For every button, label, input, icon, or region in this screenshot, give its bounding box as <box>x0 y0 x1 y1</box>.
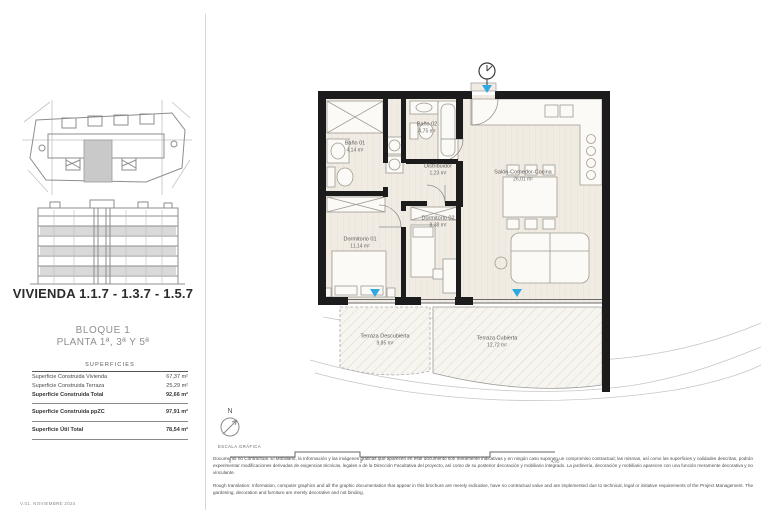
row-value: 97,91 m² <box>166 408 188 417</box>
scale-label: ESCALA GRÁFICA <box>218 444 261 449</box>
table-separator <box>32 421 188 422</box>
plan-sheet: VIVIENDA 1.1.7 - 1.3.7 - 1.5.7 BLOQUE 1 … <box>0 0 768 529</box>
room-label-salon: Salón-Comedor-Cocina 26,01 m² <box>494 169 551 182</box>
room-label-distribuidor: Distribuidor 1,23 m² <box>424 163 452 176</box>
table-separator <box>32 403 188 404</box>
dining-table <box>503 177 557 217</box>
version-label: V.01. NOVIEMBRE 2024 <box>20 501 76 506</box>
block-label: BLOQUE 1 <box>10 325 196 336</box>
room-label-dormitorio-02: Dormitorio 02 8,38 m² <box>421 215 454 228</box>
room-label-dormitorio-01: Dormitorio 01 11,14 m² <box>343 236 376 249</box>
highlighted-unit <box>84 140 112 182</box>
disclaimer-spanish: Documento no Contractual. El Mobiliario,… <box>213 456 753 477</box>
table-row: Superficie Construida ppZC 97,91 m² <box>32 408 188 417</box>
building-elevation-thumbnail <box>30 196 185 286</box>
desk <box>443 259 457 293</box>
toilet <box>327 167 335 187</box>
unit-title: VIVIENDA 1.1.7 - 1.3.7 - 1.5.7 <box>10 286 196 302</box>
row-value: 67,37 m² <box>166 373 188 382</box>
disclaimer-block: Documento no Contractual. El Mobiliario,… <box>213 456 753 502</box>
chair <box>433 269 443 279</box>
washer <box>386 137 403 154</box>
row-label: Superficie Construida ppZC <box>32 408 105 417</box>
floor-label: PLANTA 1ª, 3ª Y 5ª <box>10 337 196 348</box>
row-value: 92,66 m² <box>166 391 188 400</box>
room-label-bano-01: Baño 01 4,14 m² <box>345 140 366 153</box>
surfaces-table: Superficie Construida Vivienda 67,37 m² … <box>32 373 188 444</box>
row-value: 78,54 m² <box>166 426 188 435</box>
row-label: Superficie Útil Total <box>32 426 83 435</box>
room-label-bano-02: Baño 02 4,75 m² <box>417 121 438 134</box>
terrace-covered-area <box>433 307 602 388</box>
table-row: Superficie Útil Total 78,54 m² <box>32 426 188 435</box>
disclaimer-english: Rough translation: Information, computer… <box>213 483 753 497</box>
dryer <box>386 156 403 173</box>
site-plan-thumbnail <box>22 100 192 195</box>
row-label: Superficie Construida Terraza <box>32 382 104 391</box>
surfaces-table-header: SUPERFICIES <box>32 362 188 372</box>
row-label: Superficie Construida Total <box>32 391 103 400</box>
floor-plan-drawing <box>205 55 765 405</box>
room-label-terraza-descubierta: Terraza Descubierta 9,85 m² <box>360 333 409 346</box>
row-value: 25,29 m² <box>166 382 188 391</box>
table-row: Superficie Construida Terraza 25,29 m² <box>32 382 188 391</box>
nightstand <box>387 288 395 297</box>
table-row: Superficie Construida Total 92,66 m² <box>32 391 188 400</box>
table-separator <box>32 439 188 440</box>
table-row: Superficie Construida Vivienda 67,37 m² <box>32 373 188 382</box>
north-and-scale: N ESCALA GRÁFICA 0 2 4,95 <box>210 403 570 463</box>
north-arrow-icon <box>221 418 239 436</box>
entry-marker-icon <box>479 63 495 85</box>
room-label-terraza-cubierta: Terraza Cubierta 12,72 m² <box>477 335 518 348</box>
elevation-shaded-floors <box>40 226 176 275</box>
row-label: Superficie Construida Vivienda <box>32 373 107 382</box>
north-label: N <box>227 408 232 415</box>
